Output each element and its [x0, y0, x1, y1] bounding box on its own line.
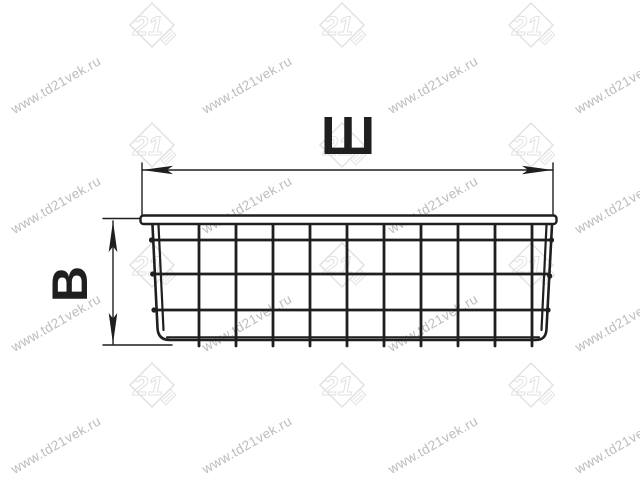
right-wire-end-bump — [549, 237, 554, 242]
basket-technical-drawing — [0, 0, 640, 480]
left-wire-end-bump — [149, 237, 154, 242]
height-dimension-label: В — [40, 254, 100, 314]
basket-outline — [153, 225, 553, 340]
left-wire-end-bump — [151, 307, 156, 312]
right-wire-end-bump — [545, 307, 550, 312]
diagram-canvas: www.td21vek.ruwww.td21vek.ruwww.td21vek.… — [0, 0, 640, 480]
basket-top-rail — [141, 216, 557, 225]
width-dimension-label: Ш — [320, 108, 376, 164]
left-wire-end-bump — [150, 271, 155, 276]
right-wire-end-bump — [547, 273, 552, 278]
